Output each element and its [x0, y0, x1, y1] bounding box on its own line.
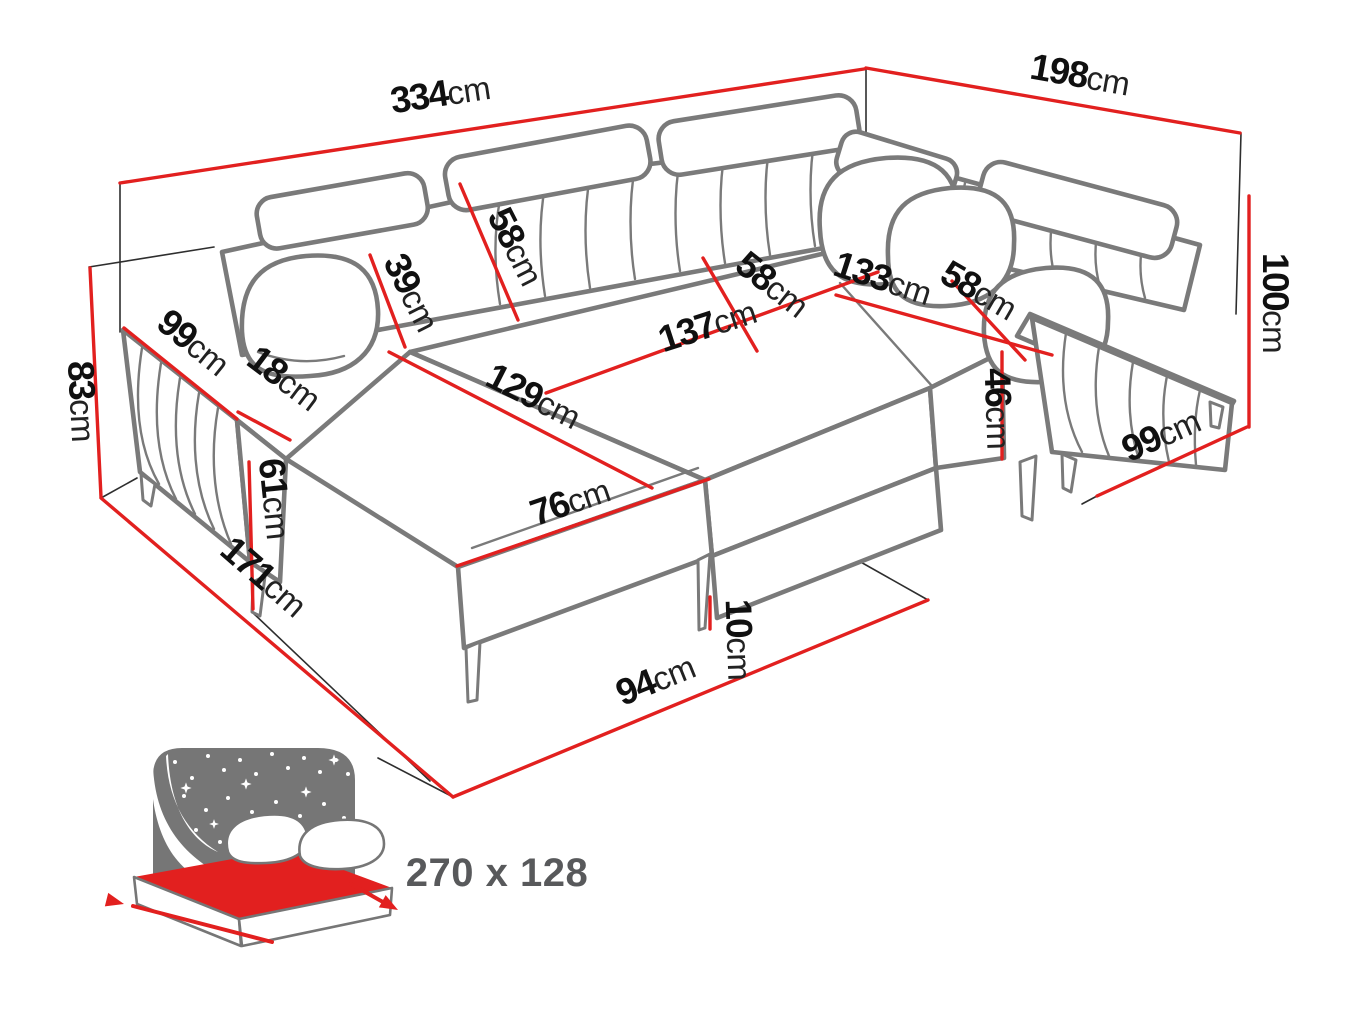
- left-armrest-outer: [123, 330, 250, 562]
- dim-label-seat-height: 46cm: [977, 367, 1021, 450]
- guide-right-corner-vertical: [1236, 133, 1241, 314]
- guide-right-foot-tick: [1082, 496, 1097, 504]
- sofa-dimension-diagram: 334cm 198cm 100cm 83cm 99cm 18cm 61cm 17…: [0, 0, 1347, 1010]
- chaise-leg-right: [698, 554, 710, 630]
- dim-line-front-edge: [453, 600, 928, 797]
- diagram-canvas: 334cm 198cm 100cm 83cm 99cm 18cm 61cm 17…: [0, 0, 1347, 1010]
- bed-arrow-left-head: [105, 893, 126, 911]
- dim-label-front-edge: 94cm: [610, 645, 701, 713]
- right-armrest: [1017, 314, 1234, 492]
- right-armrest-foot-front: [1210, 402, 1223, 428]
- guide-left-wall-top: [89, 247, 214, 267]
- dim-label-leg-height: 10cm: [718, 598, 762, 681]
- sleeping-area-size: 270 x 128: [406, 851, 588, 895]
- sofa-leg-right-seat: [1020, 456, 1036, 520]
- dim-label-left-height: 83cm: [60, 360, 105, 443]
- right-armrest-foot-rear: [1062, 454, 1076, 492]
- sofa-bed-icon: 270 x 128: [105, 748, 588, 946]
- dim-label-right-side-depth: 198cm: [1027, 46, 1133, 104]
- dim-label-right-height: 100cm: [1255, 253, 1296, 353]
- guide-floor-left: [101, 478, 137, 498]
- chaise-leg-left: [466, 642, 480, 702]
- dim-label-back-width: 334cm: [388, 66, 493, 121]
